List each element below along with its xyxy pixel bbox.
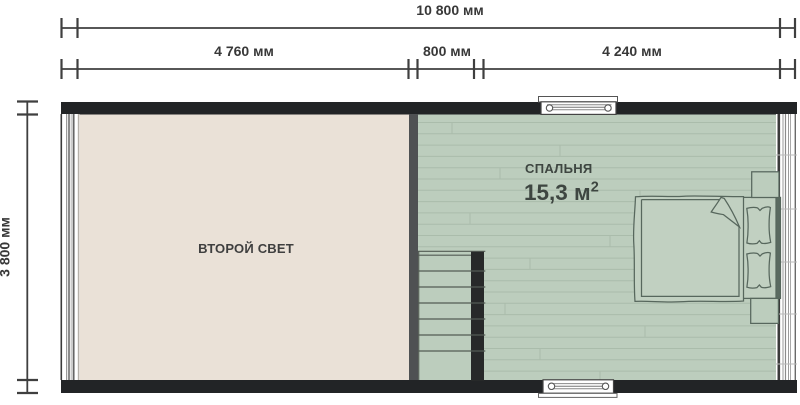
svg-text:800 мм: 800 мм [423, 43, 471, 59]
svg-text:ВТОРОЙ СВЕТ: ВТОРОЙ СВЕТ [198, 241, 294, 256]
svg-text:3 800 мм: 3 800 мм [0, 217, 13, 277]
svg-text:15,3 м2: 15,3 м2 [524, 180, 599, 206]
svg-text:4 240 мм: 4 240 мм [602, 43, 662, 59]
svg-text:10 800 мм: 10 800 мм [416, 2, 483, 18]
svg-text:СПАЛЬНЯ: СПАЛЬНЯ [525, 161, 593, 176]
svg-text:4 760 мм: 4 760 мм [214, 43, 274, 59]
